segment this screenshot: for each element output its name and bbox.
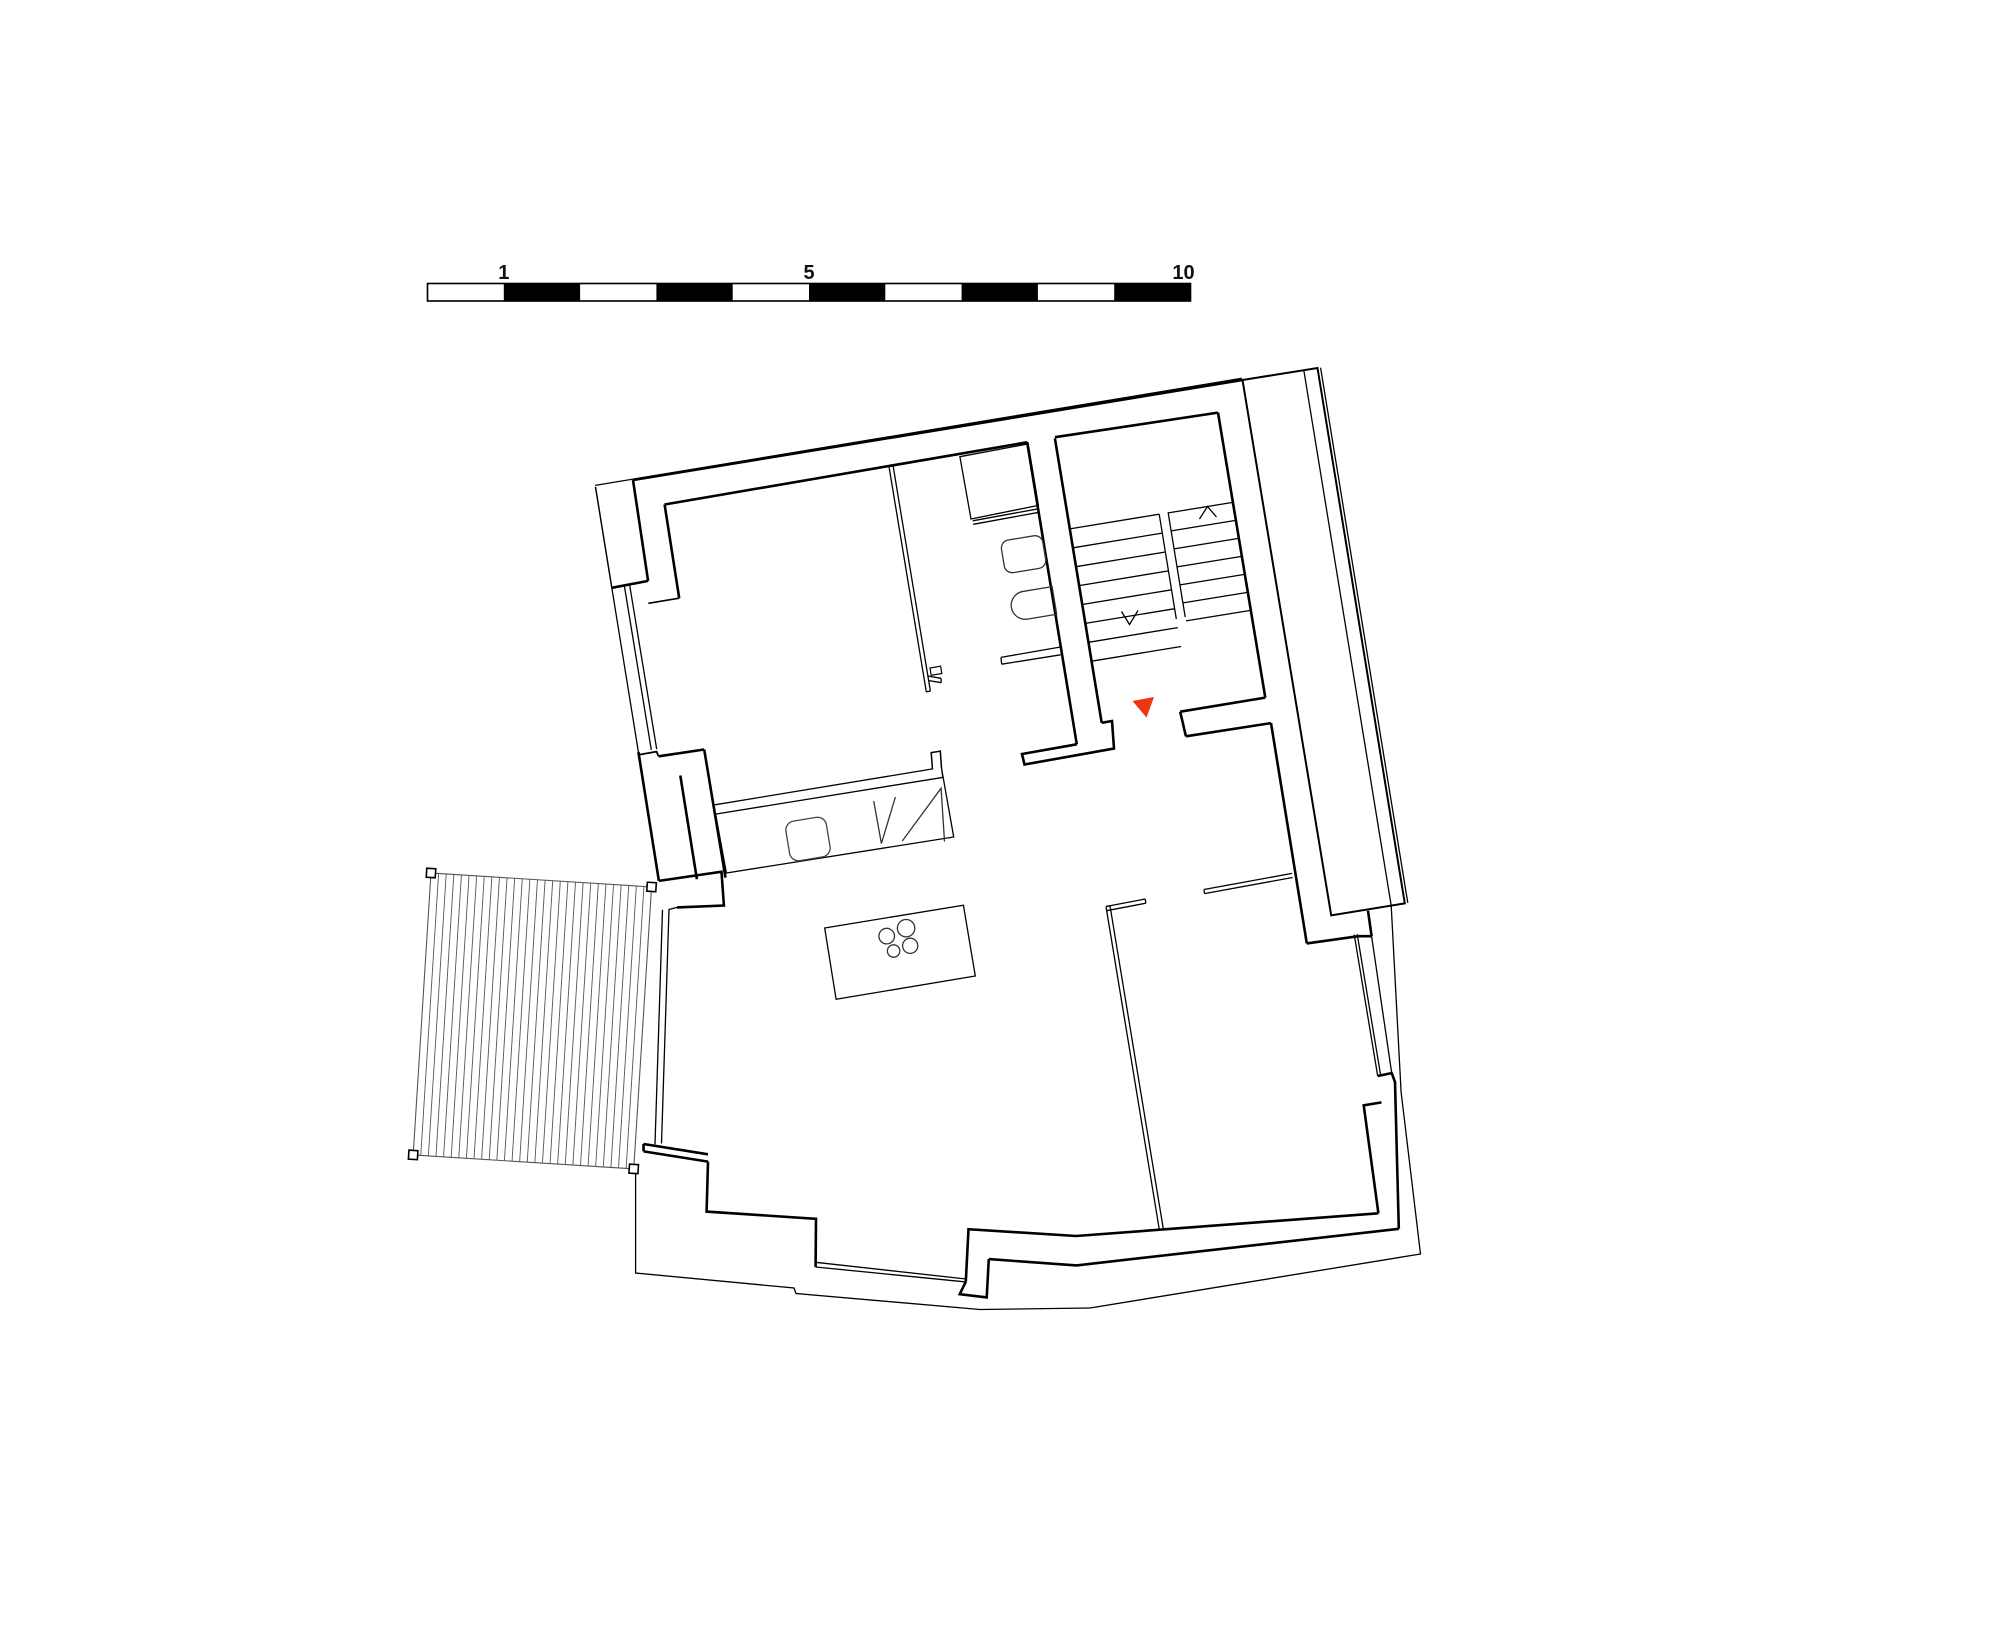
svg-text:10: 10: [1172, 262, 1194, 284]
svg-text:5: 5: [803, 262, 814, 284]
svg-text:1: 1: [498, 262, 509, 284]
